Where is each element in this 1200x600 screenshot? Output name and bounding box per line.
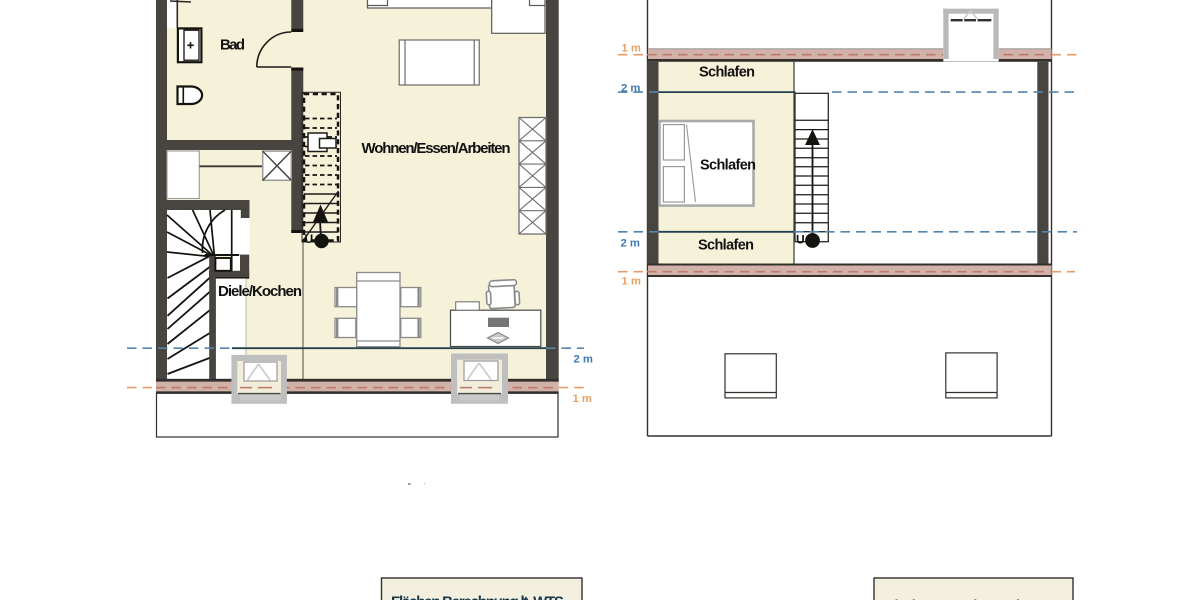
svg-text:Schlafen: Schlafen	[700, 158, 756, 174]
svg-text:U: U	[796, 233, 805, 247]
svg-text:Diele/Kochen: Diele/Kochen	[218, 283, 302, 300]
svg-text:Schlafen: Schlafen	[699, 65, 755, 81]
svg-text:Bad: Bad	[220, 37, 245, 54]
svg-text:2 m: 2 m	[574, 354, 593, 366]
svg-text:Wohnen/Essen/Arbeiten: Wohnen/Essen/Arbeiten	[362, 140, 511, 157]
svg-text:1 m: 1 m	[622, 276, 641, 288]
svg-text:U: U	[305, 232, 314, 246]
svg-text:1 m: 1 m	[622, 43, 641, 55]
svg-text:Schlafen: Schlafen	[698, 238, 754, 254]
svg-text:2 m: 2 m	[621, 82, 640, 94]
svg-text:1 m: 1 m	[573, 393, 592, 405]
svg-text:2 m: 2 m	[621, 238, 640, 250]
svg-text:Flächen Berechnung lt. WTS: Flächen Berechnung lt. WTS	[391, 594, 564, 600]
